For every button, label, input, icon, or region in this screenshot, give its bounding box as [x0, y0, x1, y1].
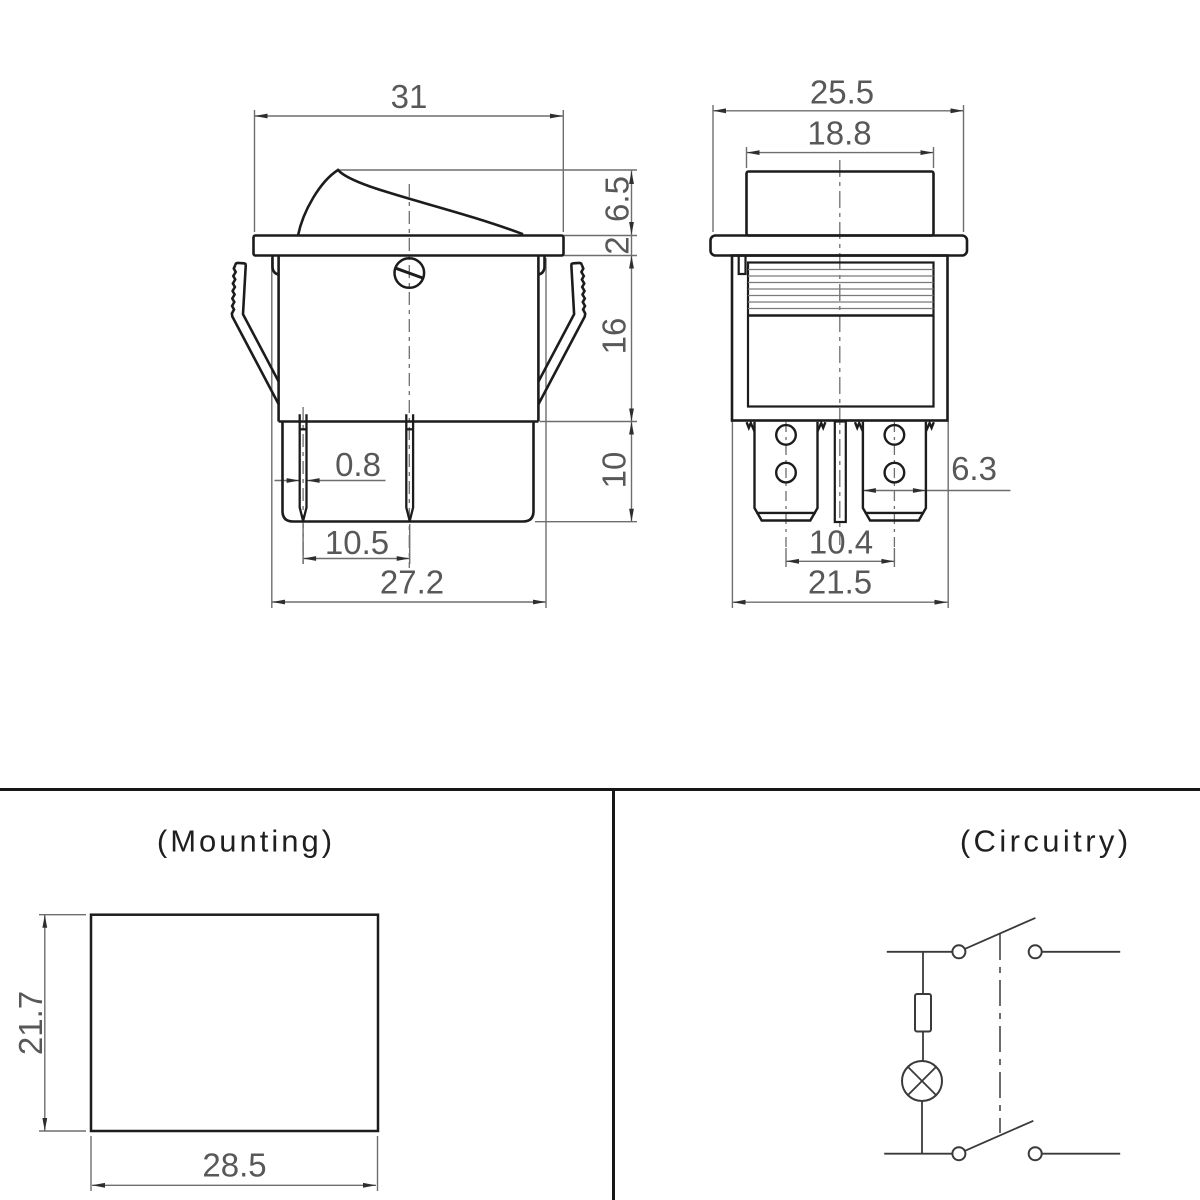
- svg-text:10: 10: [596, 452, 633, 489]
- svg-text:18.8: 18.8: [807, 115, 871, 152]
- svg-text:10.4: 10.4: [809, 524, 873, 561]
- svg-text:0.8: 0.8: [335, 446, 381, 483]
- svg-text:27.2: 27.2: [380, 564, 444, 601]
- svg-text:6.5: 6.5: [599, 176, 636, 222]
- svg-text:21.5: 21.5: [808, 564, 872, 601]
- svg-text:25.5: 25.5: [810, 74, 874, 111]
- svg-text:31: 31: [391, 78, 428, 115]
- svg-text:2: 2: [599, 236, 636, 254]
- svg-text:16: 16: [596, 318, 633, 355]
- svg-text:6.3: 6.3: [951, 450, 997, 487]
- svg-text:28.5: 28.5: [202, 1147, 266, 1184]
- svg-text:21.7: 21.7: [12, 991, 49, 1055]
- svg-text:(Mounting): (Mounting): [157, 824, 335, 859]
- svg-text:(Circuitry): (Circuitry): [960, 824, 1132, 859]
- svg-text:10.5: 10.5: [325, 524, 389, 561]
